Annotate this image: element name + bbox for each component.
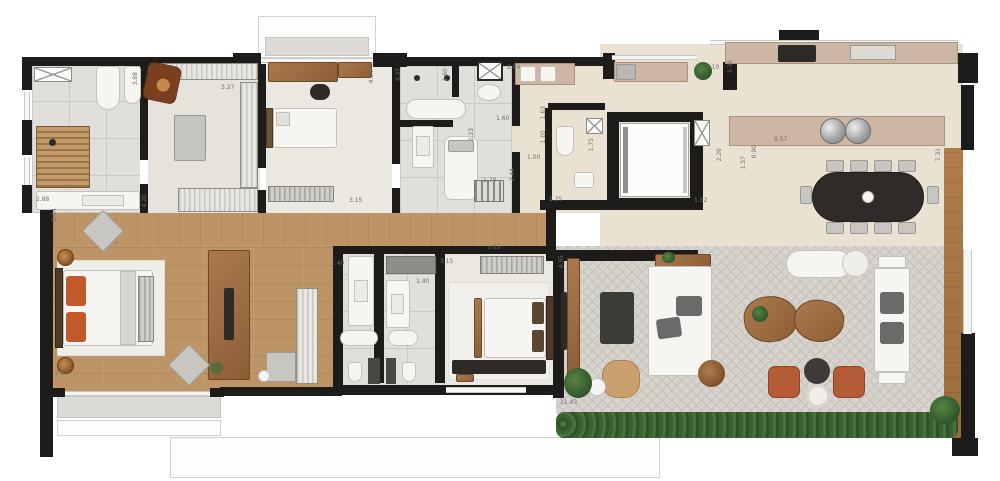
armchair-gray	[266, 352, 296, 382]
toilet-icon	[348, 362, 362, 382]
dimension-label: 2.84	[507, 64, 520, 71]
plant-icon	[564, 368, 592, 398]
round-sink-icon	[477, 84, 501, 101]
leather-pouf	[698, 360, 725, 387]
window	[24, 92, 30, 120]
dining-chair	[826, 160, 844, 172]
wall	[22, 185, 32, 213]
loveseat-cushion	[880, 322, 904, 344]
dimension-label: 1.52	[694, 197, 707, 204]
plant-icon	[752, 306, 768, 322]
duct-icon	[694, 120, 710, 146]
dimension-label: 4.95	[558, 255, 565, 268]
dimension-label: 5.14	[51, 208, 58, 221]
wall	[452, 64, 459, 97]
washer-icon	[520, 66, 536, 82]
bathtub	[406, 99, 466, 119]
bench	[268, 186, 334, 202]
shower-box	[477, 61, 503, 81]
sofa-cushion	[676, 296, 702, 316]
dimension-label: 1.75	[588, 138, 595, 151]
dimension-label: 3.27	[221, 84, 234, 91]
plant-icon	[662, 252, 675, 263]
dimension-label: 3.37	[395, 68, 402, 81]
dimension-label: 8.57	[774, 136, 787, 143]
dimension-label: 4.04	[368, 70, 375, 83]
bathtub	[340, 330, 378, 346]
bathtub	[388, 330, 418, 346]
shower-door	[368, 358, 380, 384]
dimension-label: 11.43	[560, 399, 577, 406]
coffee-table-dark	[600, 292, 634, 344]
dimension-label: 3.15	[349, 197, 362, 204]
floor-corridor	[53, 213, 556, 246]
vanity-basin	[391, 294, 404, 314]
nightstand-lamp	[57, 249, 74, 266]
shower-door	[386, 358, 396, 384]
dimension-label: 3.15	[440, 258, 453, 265]
end-table	[878, 372, 906, 384]
armchair-rust	[768, 366, 800, 398]
wardrobe	[240, 82, 258, 188]
round-table-white	[806, 384, 830, 408]
elevator-cab	[620, 123, 689, 197]
window	[612, 55, 697, 60]
dining-chair	[874, 160, 892, 172]
elevator-door	[623, 127, 628, 193]
sofa-cushion	[656, 316, 683, 339]
wall	[961, 333, 975, 438]
floor-plan: 2.885.144.203.883.274.043.153.371.601.60…	[0, 0, 1000, 481]
loveseat	[874, 268, 910, 372]
dining-chair	[898, 160, 916, 172]
dining-chair	[800, 186, 812, 204]
wall	[392, 188, 400, 213]
wardrobe	[296, 288, 318, 384]
pot-icon	[820, 118, 846, 144]
wall	[220, 387, 342, 396]
dimension-label: 3.38	[727, 60, 734, 73]
dining-chair	[927, 186, 939, 204]
dimension-label: 3.05	[487, 244, 500, 251]
glass-panel	[386, 256, 436, 274]
bed-pillow	[276, 112, 290, 126]
cooktop-icon	[778, 45, 816, 62]
planter-hedge	[556, 412, 958, 438]
dimension-label: 0.90	[751, 145, 758, 158]
dimension-label: 4.20	[141, 194, 148, 207]
window-balcony-door	[65, 391, 210, 396]
dining-chair	[898, 222, 916, 234]
toilet-icon	[96, 66, 120, 110]
end-table	[878, 256, 906, 268]
round-table-dark	[804, 358, 830, 384]
shelf	[338, 62, 372, 78]
wall	[373, 53, 407, 67]
wall	[958, 53, 978, 83]
kitchen-sink-icon	[850, 45, 896, 60]
toilet-icon	[556, 126, 574, 156]
desk	[268, 62, 338, 82]
wall	[53, 388, 65, 397]
dimension-label: 1.00	[527, 154, 540, 161]
bed-headboard	[546, 296, 554, 360]
bed-foot-bench	[474, 298, 482, 358]
wall	[545, 108, 552, 205]
bed-pillow	[532, 330, 544, 352]
wall	[548, 103, 605, 110]
dining-chair	[850, 160, 868, 172]
dimension-label: 1.25	[549, 196, 562, 203]
wall-elevator	[607, 112, 619, 210]
elevator-rail	[683, 127, 687, 193]
wall	[333, 246, 343, 391]
wall-elevator	[607, 112, 703, 122]
wall	[952, 438, 978, 456]
wall	[210, 388, 224, 397]
shower-head-icon	[414, 75, 420, 81]
dimension-label: 1.57	[740, 156, 747, 169]
dimension-label: 1.60	[496, 115, 509, 122]
armchair-rust	[833, 366, 865, 398]
balcony-slab	[57, 396, 221, 418]
bed-pillow	[532, 302, 544, 324]
dimension-label: 1.63	[540, 106, 547, 119]
top-balcony-slab	[265, 37, 369, 56]
dryer-icon	[540, 66, 556, 82]
dining-chair	[826, 222, 844, 234]
vanity-basin	[82, 195, 124, 206]
dimension-label: 3.88	[132, 72, 139, 85]
wall	[40, 205, 53, 457]
shower-head-icon	[49, 139, 56, 146]
dimension-label: 1.40	[416, 278, 429, 285]
wall	[445, 246, 556, 254]
dimension-label: 1.70	[483, 177, 496, 184]
bed-throw	[120, 271, 136, 345]
bed-bench	[138, 276, 154, 342]
kitchen-counter	[725, 42, 958, 64]
wall	[961, 85, 974, 150]
dimension-label: 3.10	[706, 64, 719, 71]
bed-pillow-orange	[66, 276, 86, 306]
closet-island	[174, 115, 206, 161]
toilet-icon	[402, 362, 416, 382]
shower-tray-icon	[34, 67, 72, 82]
bar-sink-icon	[616, 64, 636, 80]
drawer-unit	[456, 374, 474, 382]
dimension-label: 2.44	[509, 168, 516, 181]
desk-chair	[310, 84, 330, 100]
wall	[22, 57, 32, 90]
wall-elevator	[607, 198, 703, 210]
plant-icon	[930, 396, 960, 424]
dimension-label: 2.26	[716, 148, 723, 161]
dimension-label: 1.60	[442, 68, 449, 81]
window	[24, 157, 30, 185]
bench	[480, 256, 544, 274]
wall	[22, 120, 32, 155]
wall	[512, 152, 520, 213]
balcony-rail	[57, 420, 221, 436]
duct-icon	[586, 118, 603, 134]
vanity-basin	[416, 136, 430, 156]
side-table	[258, 370, 270, 382]
bed-headboard	[266, 108, 273, 148]
armchair-tan	[602, 360, 640, 398]
window	[963, 250, 972, 334]
dimension-label: 2.88	[36, 196, 49, 203]
lounger-pillow	[448, 140, 474, 152]
wall	[333, 246, 445, 254]
dimension-label: 2.23	[468, 128, 475, 141]
table-centerpiece	[862, 191, 874, 203]
tv-sideboard	[567, 258, 580, 378]
dining-chair	[850, 222, 868, 234]
lounger-end	[842, 250, 869, 277]
dining-chair	[874, 222, 892, 234]
loveseat-cushion	[880, 292, 904, 314]
vanity-basin	[354, 280, 368, 302]
tv-icon	[224, 288, 234, 340]
window-suite-3	[446, 387, 526, 393]
terrace-lower-outline	[170, 437, 660, 478]
pouf-green	[210, 362, 223, 374]
dimension-label: 1.05	[540, 130, 547, 143]
bed-headboard	[55, 268, 63, 348]
sink-icon	[574, 172, 594, 188]
wall	[258, 190, 266, 213]
shower-wood-deck	[36, 126, 90, 188]
tv-console	[452, 360, 546, 374]
dimension-label: 7.57	[55, 370, 68, 377]
wall	[435, 250, 445, 383]
dimension-label: 7.31	[935, 148, 942, 161]
wardrobe	[178, 188, 258, 212]
pot-icon	[845, 118, 871, 144]
bed-pillow-orange	[66, 312, 86, 342]
wall	[258, 64, 266, 168]
dimension-label: 1.40	[331, 260, 344, 267]
